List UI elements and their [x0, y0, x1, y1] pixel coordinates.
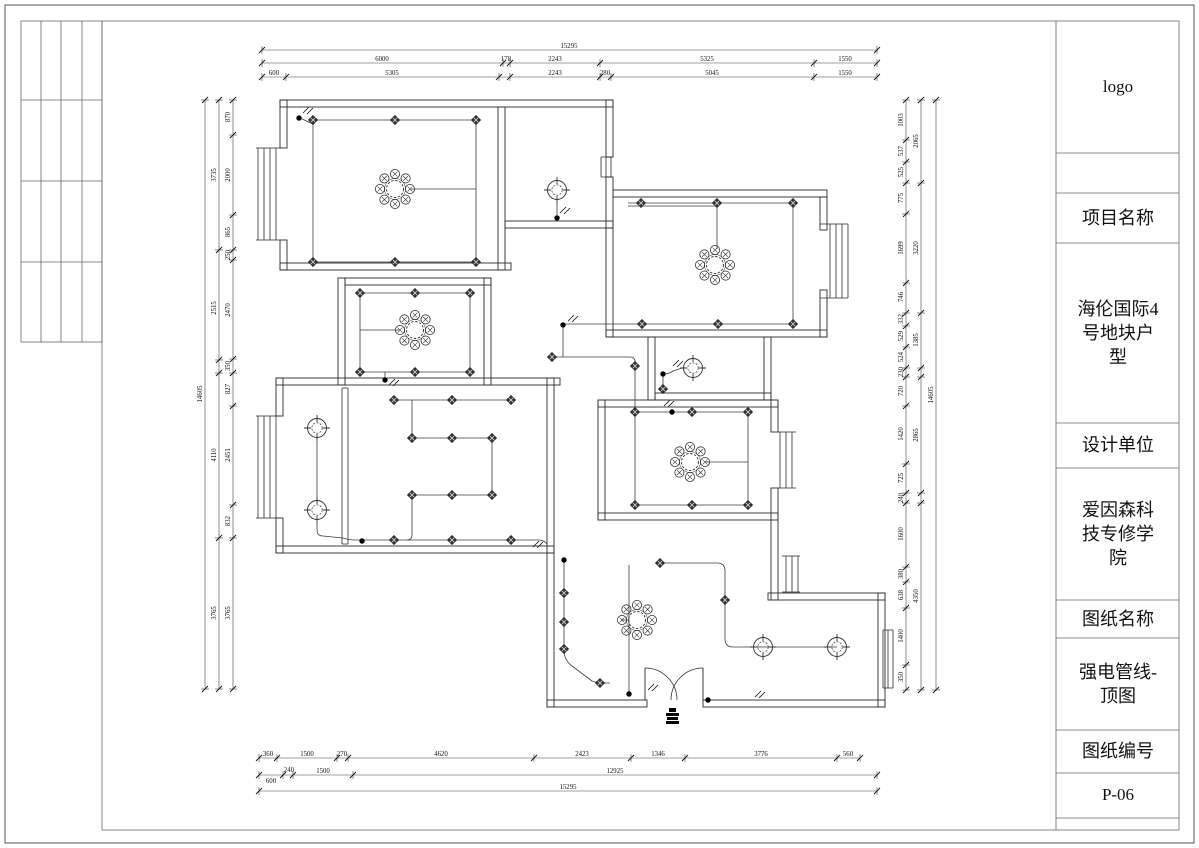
downlight-icon [687, 500, 696, 509]
designer-label: 设计单位 [1057, 423, 1179, 468]
dimension-label: 3765 [225, 606, 232, 620]
dimension-label: 775 [898, 192, 905, 203]
dimension-label: 4620 [434, 751, 448, 758]
page-border [5, 5, 1194, 843]
downlight-icon [308, 115, 317, 124]
dimension-label: 240 [898, 492, 905, 503]
dimension-label: 350 [898, 671, 905, 682]
dimension-label: 600 [269, 70, 280, 77]
dimension-label: 5325 [700, 56, 714, 63]
chandelier-icon [695, 245, 734, 284]
dimension-label: 2451 [225, 448, 232, 462]
downlight-icon [447, 490, 456, 499]
junction-dot-icon [296, 115, 301, 120]
dimension-label: 1400 [898, 629, 905, 643]
downlight-icon [559, 588, 568, 597]
downlight-icon [655, 558, 664, 567]
walls [276, 100, 885, 707]
downlight-icon [713, 319, 722, 328]
dimension-label: 3765 [211, 606, 218, 620]
junction-dot-icon [705, 697, 710, 702]
dimension-label: 3220 [913, 241, 920, 255]
dimension-label: 638 [898, 589, 905, 600]
downlight-icon [410, 367, 419, 376]
junction-dot-icon [669, 409, 674, 414]
dimension-label: 2000 [225, 168, 232, 182]
dimension-label: 14605 [928, 386, 935, 404]
wiring [300, 118, 837, 692]
dimension-label: 720 [898, 385, 905, 396]
downlight-icon [471, 257, 480, 266]
dimension-label: 2243 [548, 56, 562, 63]
entry-marker-icon [666, 708, 679, 724]
dimension-label: 2423 [575, 751, 589, 758]
downlight-icon [630, 500, 639, 509]
junction-dot-icon [626, 691, 631, 696]
dimension-label: 1699 [898, 241, 905, 255]
dimension-label: 380 [898, 568, 905, 579]
downlight-icon [720, 595, 729, 604]
dimension-label: 4350 [913, 589, 920, 603]
downlight-icon [630, 407, 639, 416]
downlight-icon [637, 319, 646, 328]
switch-mark-icon [755, 691, 765, 698]
dimension-label: 2065 [913, 134, 920, 148]
downlight-icon [487, 490, 496, 499]
downlight-icon [788, 319, 797, 328]
dimension-label: 15295 [560, 784, 578, 791]
dimension-label: 2470 [225, 303, 232, 317]
dimension-label: 350 [225, 360, 232, 371]
downlight-icon [559, 617, 568, 626]
dimension-label: 250 [225, 249, 232, 260]
windows [256, 148, 893, 688]
sheet-number: P-06 [1057, 773, 1179, 818]
dimension-label: 1550 [838, 70, 852, 77]
dimension-annotations: 1529560001782243532515506005305224328050… [197, 43, 940, 795]
dimension-label: 3735 [211, 168, 218, 182]
downlight-icon [447, 433, 456, 442]
project-name: 海伦国际4 号地块户 型 [1057, 243, 1179, 423]
designer-name: 爱因森科 技专修学 院 [1057, 468, 1179, 600]
switch-mark-icon [560, 207, 570, 214]
downlight-icon [471, 115, 480, 124]
downlight-icon [595, 678, 604, 687]
downlight-icon [389, 535, 398, 544]
dimension-label: 1500 [316, 768, 330, 775]
dimension-label: 2515 [211, 301, 218, 315]
dimension-label: 2243 [548, 70, 562, 77]
junction-dot-icon [554, 215, 559, 220]
downlight-icon [658, 384, 667, 393]
dimension-label: 746 [898, 291, 905, 302]
chandelier-icon [375, 169, 414, 208]
revision-strip [21, 21, 102, 342]
dimension-label: 1550 [838, 56, 852, 63]
dimension-label: 280 [600, 70, 611, 77]
downlight-icon [355, 288, 364, 297]
dimension-label: 6000 [375, 56, 389, 63]
downlight-icon [630, 361, 639, 370]
switch-mark-icon [303, 107, 313, 114]
dimension-label: 870 [225, 111, 232, 122]
downlight-icon [389, 395, 398, 404]
sheet-label: 图纸名称 [1057, 600, 1179, 638]
dimension-label: 1600 [898, 527, 905, 541]
logo: logo [1057, 21, 1179, 153]
downlight-icon [355, 367, 364, 376]
dimension-label: 14605 [197, 385, 204, 403]
dimension-label: 270 [337, 751, 348, 758]
dimension-label: 1003 [898, 113, 905, 127]
ceiling-symbols [296, 107, 850, 703]
dimension-label: 230 [898, 366, 905, 377]
switch-mark-icon [568, 315, 578, 322]
dimension-label: 832 [225, 515, 232, 526]
dimension-label: 600 [266, 778, 277, 785]
downlight-icon [559, 644, 568, 653]
downlight-icon [506, 535, 515, 544]
junction-dot-icon [660, 371, 665, 376]
switch-mark-icon [673, 360, 683, 367]
downlight-icon [390, 257, 399, 266]
downlight-icon [487, 433, 496, 442]
downlight-icon [743, 407, 752, 416]
switch-mark-icon [533, 541, 543, 548]
dimension-label: 865 [225, 226, 232, 237]
dimension-label: 560 [843, 751, 854, 758]
junction-dot-icon [561, 557, 566, 562]
sheet-number-label: 图纸编号 [1057, 730, 1179, 773]
downlight-icon [788, 198, 797, 207]
downlight-icon [547, 352, 556, 361]
downlight-icon [465, 367, 474, 376]
dimension-label: 3776 [754, 751, 768, 758]
project-label: 项目名称 [1057, 193, 1179, 243]
junction-dot-icon [359, 538, 364, 543]
ceiling-lamp-icon [544, 177, 570, 203]
dimension-label: 5305 [385, 70, 399, 77]
junction-dot-icon [382, 377, 387, 382]
downlight-icon [447, 395, 456, 404]
cad-sheet: 1529560001782243532515506005305224328050… [0, 0, 1199, 848]
ceiling-lamp-icon [304, 415, 330, 441]
junction-dot-icon [560, 322, 565, 327]
ceiling-lamp-icon [680, 355, 706, 381]
downlight-icon [308, 257, 317, 266]
downlight-icon [407, 433, 416, 442]
dimension-label: 827 [225, 383, 232, 394]
dimension-label: 1385 [913, 333, 920, 347]
downlight-icon [390, 115, 399, 124]
downlight-icon [410, 288, 419, 297]
dimension-label: 240 [284, 767, 295, 774]
dimension-label: 12925 [607, 768, 625, 775]
downlight-icon [407, 490, 416, 499]
chandelier-icon [395, 310, 434, 349]
dimension-label: 529 [898, 330, 905, 341]
switch-mark-icon [648, 684, 658, 691]
dimension-label: 2865 [913, 428, 920, 442]
dimension-label: 4110 [211, 448, 218, 462]
dimension-label: 332 [898, 313, 905, 324]
dimension-label: 178 [501, 56, 512, 63]
dimension-label: 537 [898, 145, 905, 156]
dimension-label: 1346 [651, 751, 665, 758]
switch-mark-icon [664, 400, 674, 407]
dimension-label: 5045 [705, 70, 719, 77]
dimension-label: 15295 [561, 43, 579, 50]
chandelier-icon [670, 442, 709, 481]
downlight-icon [465, 288, 474, 297]
downlight-icon [743, 500, 752, 509]
ceiling-lamp-icon [304, 497, 330, 523]
downlight-icon [447, 535, 456, 544]
sheet-name: 强电管线- 顶图 [1057, 638, 1179, 730]
entry-door [645, 668, 703, 724]
dimension-label: 524 [898, 351, 905, 362]
downlight-icon [506, 395, 515, 404]
dimension-label: 360 [263, 751, 274, 758]
dimension-label: 1420 [898, 427, 905, 441]
downlight-icon [687, 407, 696, 416]
dimension-label: 525 [898, 166, 905, 177]
dimension-label: 725 [898, 472, 905, 483]
dimension-label: 1500 [300, 751, 314, 758]
